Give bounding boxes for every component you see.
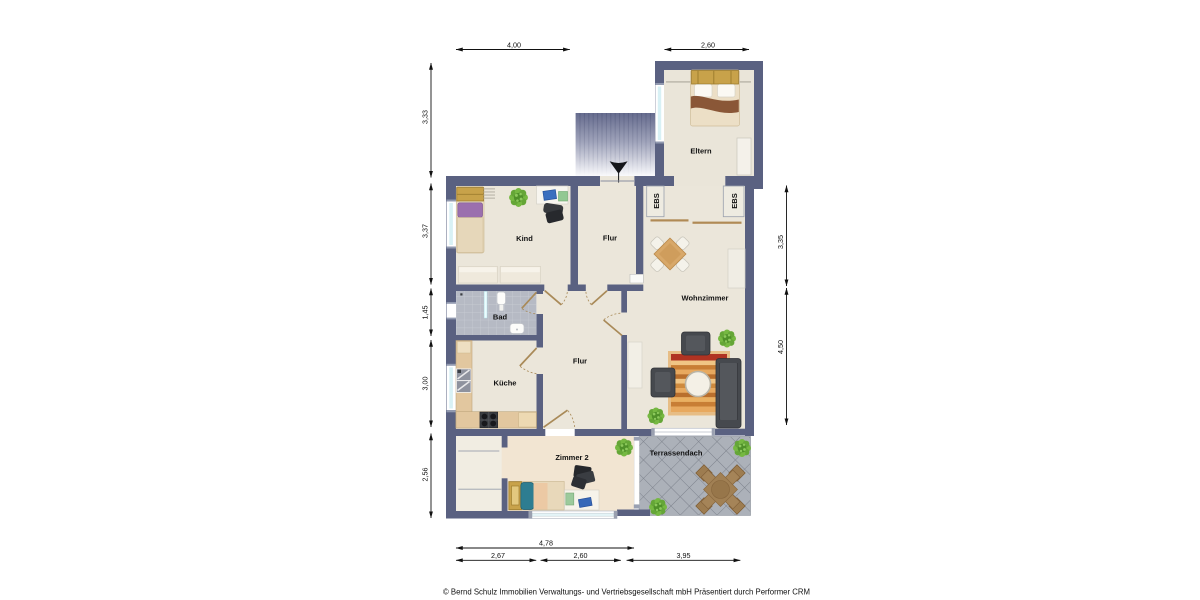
svg-text:EBS: EBS xyxy=(730,193,739,208)
svg-text:4,78: 4,78 xyxy=(539,538,553,547)
svg-text:Zimmer 2: Zimmer 2 xyxy=(555,453,588,462)
svg-text:3,00: 3,00 xyxy=(420,377,429,391)
svg-text:EBS: EBS xyxy=(652,193,661,208)
svg-text:3,33: 3,33 xyxy=(420,110,429,124)
svg-text:3,35: 3,35 xyxy=(776,235,785,249)
svg-text:2,60: 2,60 xyxy=(574,551,588,560)
svg-text:Bad: Bad xyxy=(493,313,508,322)
svg-text:2,67: 2,67 xyxy=(491,551,505,560)
svg-text:Flur: Flur xyxy=(573,357,587,366)
svg-text:Küche: Küche xyxy=(494,379,517,388)
svg-text:4,50: 4,50 xyxy=(776,340,785,354)
svg-text:2,56: 2,56 xyxy=(420,468,429,482)
svg-text:1,45: 1,45 xyxy=(420,306,429,320)
svg-text:3,95: 3,95 xyxy=(677,551,691,560)
svg-text:Flur: Flur xyxy=(603,234,617,243)
svg-text:Eltern: Eltern xyxy=(690,147,712,156)
svg-text:Terrassendach: Terrassendach xyxy=(650,449,703,458)
svg-text:© Bernd Schulz Immobilien Verw: © Bernd Schulz Immobilien Verwaltungs- u… xyxy=(443,588,810,597)
svg-text:Kind: Kind xyxy=(516,234,533,243)
svg-text:4,00: 4,00 xyxy=(507,40,521,49)
svg-text:2,60: 2,60 xyxy=(701,40,715,49)
svg-text:3,37: 3,37 xyxy=(420,224,429,238)
svg-text:Wohnzimmer: Wohnzimmer xyxy=(682,294,729,303)
